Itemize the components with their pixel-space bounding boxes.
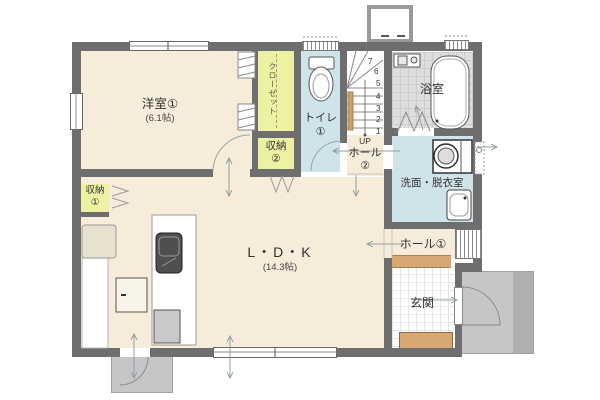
label-toilet: トイレ① (301, 112, 340, 140)
label-hall1: ホール① (392, 237, 454, 252)
wall-closet-south (258, 131, 294, 138)
window-western-top (129, 41, 209, 51)
label-western-room: 洋室① (6.1帖) (110, 97, 210, 125)
floor-plan: 7 6 5 4 3 2 1 (0, 0, 600, 400)
back-door-opening (120, 348, 150, 357)
entrance-step (392, 255, 451, 268)
wall-western-south-left (81, 169, 213, 177)
back-door-step (112, 357, 172, 392)
wall-toilet-east (340, 51, 347, 143)
window-bath-top (444, 40, 469, 50)
label-entrance: 玄関 (398, 296, 446, 311)
window-western-left (70, 93, 83, 130)
entrance-door (454, 287, 463, 325)
wall-left (72, 42, 81, 357)
stairs-area (347, 51, 384, 135)
water-heater-unit (367, 5, 413, 43)
window-ldk-bottom (213, 347, 337, 358)
label-storage1: 収納① (81, 185, 109, 209)
window-hall1-east (455, 229, 482, 259)
wall-toilet-west (294, 51, 301, 177)
label-hall2: UP ホール② (343, 136, 387, 174)
wall-washroom-south (384, 222, 473, 229)
bath-door-opening (398, 128, 434, 136)
wall-western-south-right (250, 169, 301, 177)
label-washroom: 洗面・脱衣室 (392, 177, 472, 190)
label-ldk: L・D・K (14.3帖) (225, 244, 335, 273)
porch-pillar (513, 272, 533, 353)
wall-storage1-south (81, 212, 109, 217)
label-storage2: 収納② (258, 140, 294, 166)
label-bathroom: 浴室 (402, 82, 462, 97)
wall-stub-east (455, 263, 482, 272)
window-toilet-top (302, 41, 339, 51)
wall-ldk-east (384, 258, 392, 348)
label-closet: クローゼット (268, 62, 276, 124)
